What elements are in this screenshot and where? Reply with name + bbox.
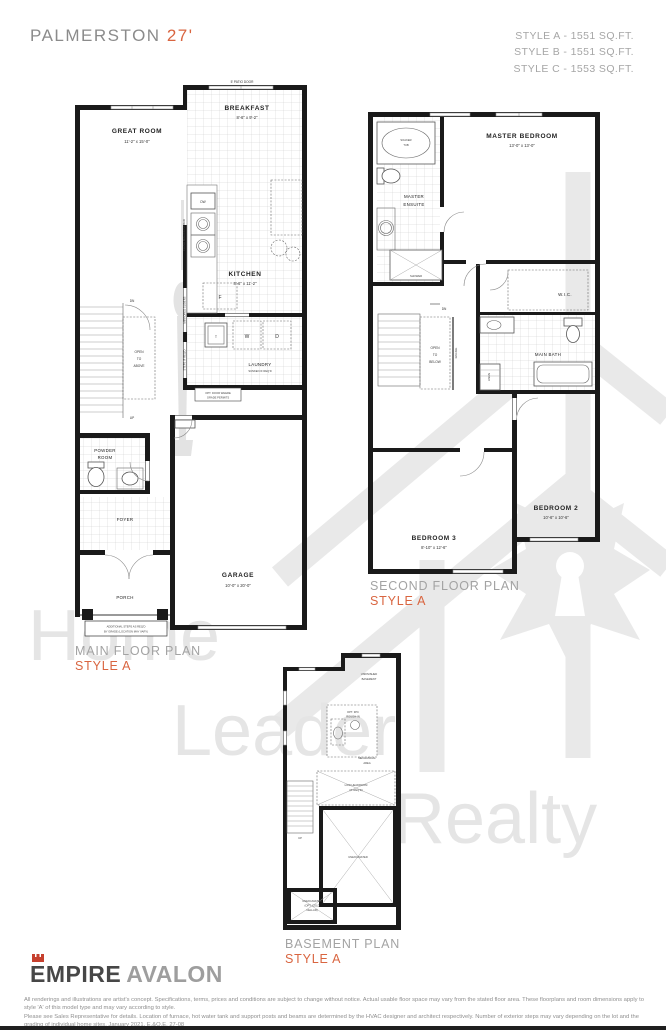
dishwasher-label: DW	[200, 200, 205, 204]
mirrored-sliders-label: MIRRORED SLIDERS	[183, 296, 187, 323]
foyer-floor	[80, 497, 170, 550]
great-room-label: GREAT ROOM	[112, 128, 162, 135]
rough-in-line1: OPT. 3PC	[347, 710, 359, 714]
second-floor-style: STYLE A	[370, 594, 426, 608]
cold-cellar-line2: (OPT. COLD	[304, 904, 319, 908]
bottom-border	[0, 1026, 666, 1030]
soaker-tub-line1: SOAKER	[400, 138, 411, 142]
basement-caption: BASEMENT PLAN	[285, 937, 400, 951]
unfinished-basement-line2: BASEMENT	[362, 677, 377, 681]
bedroom3-dims: 8'-10" x 12'-6"	[421, 545, 447, 550]
porch-label: PORCH	[116, 595, 133, 600]
main-floor-style: STYLE A	[75, 659, 131, 673]
second-dn-label: DN	[442, 307, 447, 311]
toilet-icon	[88, 468, 104, 487]
garage-label: GARAGE	[222, 572, 254, 579]
breakfast-label: BREAKFAST	[224, 105, 269, 112]
main-floor-plan: DN UP OPEN TO ABOVE 5' PATIO DOOR GREAT …	[75, 78, 310, 645]
brand-empire: EMPIRE	[30, 961, 121, 987]
breakfast-dims: 8'-6" x 9'-2"	[236, 115, 258, 120]
foyer-label: FOYER	[117, 517, 134, 522]
style-b-sqft: STYLE B - 1551 SQ.FT.	[514, 44, 634, 60]
unexcavated-label: UNEXCAVATED	[348, 855, 368, 859]
main-stairs: DN UP OPEN TO ABOVE	[80, 299, 155, 420]
disclaimer-line1: All renderings and illustrations are art…	[24, 996, 648, 1013]
soaker-tub-line2: TUB	[403, 143, 409, 147]
model-name: PALMERSTON	[30, 26, 161, 45]
bathtub	[534, 362, 592, 386]
opt-door-line1: OPT. DOOR WHERE	[205, 391, 231, 395]
rough-in-line2: ROUGH-IN	[346, 715, 360, 719]
railing-label: RAILING	[454, 348, 458, 359]
laundry-tub-label: T	[215, 335, 217, 339]
powder-room-line2: ROOM	[98, 455, 113, 460]
floorplan-page: Home Leader Realty PALMERSTON 27' STYLE …	[0, 0, 666, 1030]
bedroom2-door-arc	[517, 398, 539, 420]
wic-label: W.I.C.	[558, 292, 572, 297]
laundry-floor	[187, 317, 302, 385]
soaker-tub	[377, 122, 435, 164]
open-to-above-line1: OPEN	[134, 350, 144, 354]
master-ensuite-line1: MASTER	[404, 194, 424, 199]
additional-steps-box	[85, 621, 167, 636]
open-to-above-line2: TO	[137, 357, 142, 361]
basement-rough-in: OPT. 3PC ROUGH-IN	[327, 705, 377, 757]
cold-cellar-line3: CELLAR)	[306, 908, 317, 912]
patio-door-label: 5' PATIO DOOR	[231, 80, 255, 84]
master-bedroom-dims: 13'-0" x 13'-0"	[509, 143, 535, 148]
bedroom3-door-arc	[460, 452, 484, 476]
style-area-list: STYLE A - 1551 SQ.FT. STYLE B - 1551 SQ.…	[514, 28, 634, 77]
unfinished-basement-line1: UNFINISHED	[361, 672, 377, 676]
shower-label: SHOWER	[410, 274, 422, 278]
garage: GARAGE 10'-0" x 20'-0"	[174, 420, 254, 588]
second-floor-caption: SECOND FLOOR PLAN	[370, 579, 520, 593]
bedroom2-label: BEDROOM 2	[534, 505, 579, 512]
style-a-sqft: STYLE A - 1551 SQ.FT.	[514, 28, 634, 44]
low-headroom-area: LOW HEADROOM (IF REQ'D)	[317, 771, 395, 805]
model-width: 27'	[167, 26, 194, 45]
brand-logo: EMPIREAVALON	[30, 961, 223, 988]
kitchen-label: KITCHEN	[228, 271, 261, 278]
main-bath-label: MAIN BATH	[535, 352, 561, 357]
open-to-below-line2: TO	[433, 353, 438, 357]
open-to-below-line3: BELOW	[429, 360, 441, 364]
master-bedroom-label: MASTER BEDROOM	[486, 133, 558, 140]
garage-dims: 10'-0" x 20'-0"	[225, 583, 251, 588]
laundry-note: SUNKEN IF REQ'D	[248, 369, 271, 373]
additional-steps-line2: BY GRADE (LOCATION MAY VARY)	[104, 630, 148, 634]
laundry-label: LAUNDRY	[248, 362, 271, 367]
disclaimer-text: All renderings and illustrations are art…	[24, 996, 648, 1030]
page-title: PALMERSTON 27'	[30, 26, 193, 46]
flush-breakfast-bar-label: FLUSH BREAKFAST BAR	[182, 219, 186, 251]
opt-door-line2: GRADE PERMITS	[207, 396, 229, 400]
bath-toilet-icon	[567, 326, 580, 343]
low-headroom-line1: LOW HEADROOM	[345, 783, 368, 787]
great-room-dims: 11'-2" x 15'-0"	[124, 139, 150, 144]
steps-if-reqd-label: STEPS IF REQ'D	[183, 349, 187, 370]
cold-cellar-line1: UNEXCAVATED	[302, 899, 322, 903]
bedroom3-label: BEDROOM 3	[412, 535, 457, 542]
mechanical-line2: AREA	[363, 761, 371, 765]
fridge-label: F	[218, 295, 221, 301]
low-headroom-line2: (IF REQ'D)	[349, 788, 362, 792]
style-c-sqft: STYLE C - 1553 SQ.FT.	[514, 61, 634, 77]
bedroom2-dims: 10'-6" x 10'-6"	[543, 515, 569, 520]
brand-avalon: AVALON	[126, 961, 223, 987]
sink-icon	[122, 472, 138, 485]
bath-toilet-tank	[564, 318, 582, 326]
dryer-label: D	[275, 334, 279, 340]
ensuite-toilet-icon	[382, 169, 400, 183]
wic: W.I.C.	[490, 270, 588, 310]
basement-style: STYLE A	[285, 952, 341, 966]
second-floor-plan: SOAKER TUB MASTER ENSUITE SHOWER MASTER …	[368, 112, 600, 577]
additional-steps-line1: ADDITIONAL STEPS AS REQ'D	[107, 625, 146, 629]
master-ensuite-line2: ENSUITE	[403, 202, 424, 207]
stairs-dn-label: DN	[130, 299, 135, 303]
powder-room-line1: POWDER	[94, 448, 116, 453]
washer-label: W	[245, 334, 250, 340]
basement-stairs: UP	[287, 781, 313, 840]
open-to-below-line1: OPEN	[430, 346, 440, 350]
front-door	[105, 555, 153, 579]
linen-label: LINEN	[487, 373, 491, 381]
stairs-up-label: UP	[130, 416, 134, 420]
master-door-arc	[464, 264, 486, 286]
open-to-above-line3: ABOVE	[134, 364, 145, 368]
watermark-word-realty: Realty	[393, 779, 597, 859]
basement-up-label: UP	[298, 836, 302, 840]
basement-plan: UNFINISHED BASEMENT OPT. 3PC ROUGH-IN ME…	[283, 653, 403, 935]
mechanical-line1: MECHANICAL	[358, 756, 376, 760]
second-stairs: DN OPEN TO BELOW RAILING	[378, 304, 458, 390]
main-floor-caption: MAIN FLOOR PLAN	[75, 644, 201, 658]
